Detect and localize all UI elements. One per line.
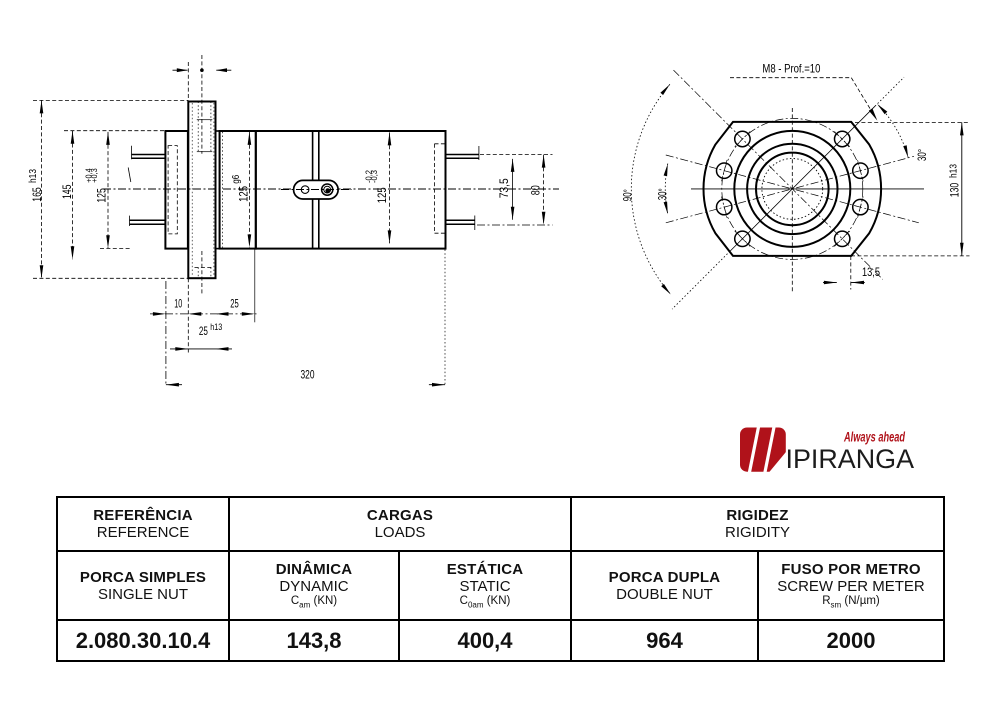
svg-text:320: 320 — [301, 367, 315, 381]
svg-text:h13: h13 — [27, 169, 39, 183]
svg-text:130: 130 — [947, 183, 961, 198]
svg-text:h13: h13 — [210, 322, 222, 333]
svg-text:+0,3: +0,3 — [89, 168, 99, 183]
svg-text:10: 10 — [174, 297, 182, 311]
svg-text:125: 125 — [375, 187, 389, 203]
svg-text:80: 80 — [529, 185, 543, 195]
svg-text:25: 25 — [199, 324, 208, 338]
svg-text:73,5: 73,5 — [497, 178, 511, 198]
svg-text:-0,3: -0,3 — [369, 170, 379, 183]
svg-text:13,5: 13,5 — [862, 265, 880, 279]
svg-text:125: 125 — [236, 186, 250, 202]
svg-text:165: 165 — [30, 187, 44, 202]
svg-text:IPIRANGA: IPIRANGA — [786, 444, 915, 474]
svg-text:M8 - Prof.=10: M8 - Prof.=10 — [762, 61, 820, 75]
svg-text:g6: g6 — [231, 174, 242, 183]
svg-text:30°: 30° — [915, 149, 929, 161]
svg-text:145: 145 — [60, 184, 74, 199]
svg-text:Always ahead: Always ahead — [843, 430, 905, 445]
svg-text:125: 125 — [95, 188, 109, 203]
svg-text:30°: 30° — [655, 188, 669, 200]
svg-text:25: 25 — [230, 297, 239, 311]
svg-text:90°: 90° — [621, 189, 635, 201]
svg-text:h13: h13 — [947, 164, 959, 178]
